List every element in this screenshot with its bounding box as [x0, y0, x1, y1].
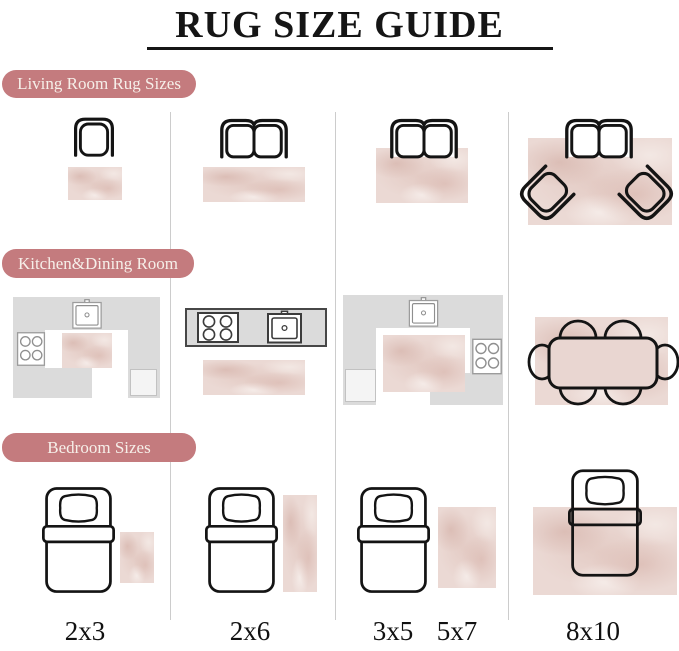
stove-icon: [472, 338, 502, 375]
sink-icon: [408, 297, 439, 327]
rug-2x6-kitchen: [203, 360, 305, 395]
column-divider-3: [508, 112, 509, 620]
column-divider-1: [170, 112, 171, 620]
stove-icon: [197, 312, 239, 343]
loveseat-icon: [216, 115, 292, 159]
section-label-living-room: Living Room Rug Sizes: [17, 74, 181, 94]
column-divider-2: [335, 112, 336, 620]
bed-icon: [357, 482, 430, 598]
appliance-square: [130, 369, 157, 396]
section-pill-living-room: Living Room Rug Sizes: [2, 70, 196, 98]
rug-size-guide: RUG SIZE GUIDE Living Room Rug Sizes: [0, 0, 679, 651]
rug-2x3-living: [68, 167, 122, 200]
size-label-2x3: 2x3: [43, 616, 127, 647]
size-label-5x7: 5x7: [415, 616, 499, 647]
page-title: RUG SIZE GUIDE: [0, 3, 679, 47]
bed-icon: [568, 466, 642, 580]
section-label-kitchen-dining: Kitchen&Dining Room: [18, 254, 178, 274]
section-label-bedroom: Bedroom Sizes: [47, 438, 150, 458]
dining-set-icon: [525, 307, 679, 411]
appliance-square: [345, 369, 376, 402]
size-label-8x10: 8x10: [551, 616, 635, 647]
rug-2x6-living: [203, 167, 305, 202]
bed-icon: [42, 482, 115, 598]
rug-2x3-bedroom: [120, 532, 154, 583]
bed-icon: [205, 482, 278, 598]
armchair-icon: [70, 113, 118, 159]
rug-2x3-kitchen: [62, 333, 112, 368]
rug-5x7-bedroom: [438, 507, 496, 588]
sink-icon: [72, 299, 102, 329]
kitchen-counter-bottom: [13, 368, 92, 398]
section-pill-kitchen-dining: Kitchen&Dining Room: [2, 249, 194, 278]
loveseat-icon: [386, 115, 462, 159]
rug-5x7-kitchen: [383, 335, 465, 392]
dining-table-icon: [549, 338, 657, 388]
stove-icon: [16, 332, 46, 366]
size-label-2x6: 2x6: [208, 616, 292, 647]
title-underline: [147, 47, 553, 50]
sink-icon: [267, 310, 302, 344]
rug-2x6-bedroom: [283, 495, 317, 592]
section-pill-bedroom: Bedroom Sizes: [2, 433, 196, 462]
loveseat-icon: [561, 115, 637, 159]
